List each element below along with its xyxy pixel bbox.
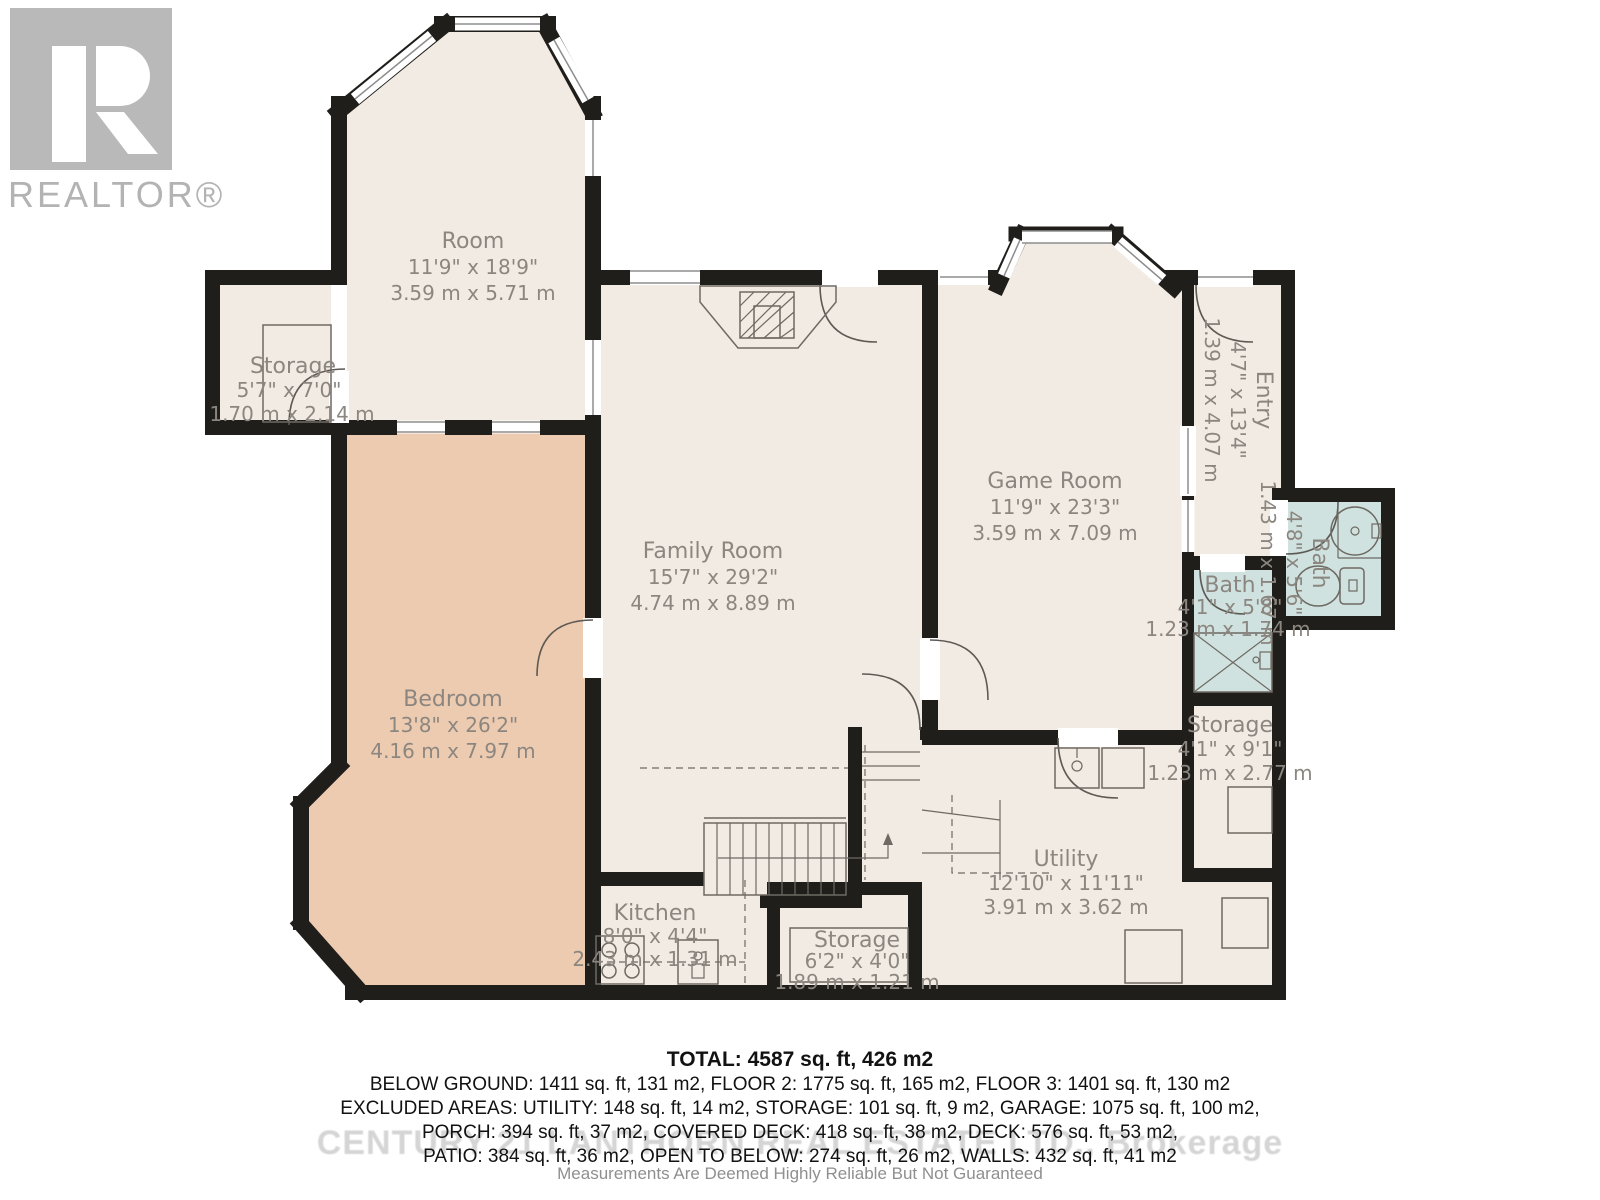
game-room-label: Game Room 11'9" x 23'3" 3.59 m x 7.09 m — [972, 469, 1137, 545]
svg-text:1.23 m x 2.77 m: 1.23 m x 2.77 m — [1147, 761, 1312, 785]
svg-text:3.59 m x 7.09 m: 3.59 m x 7.09 m — [972, 521, 1137, 545]
room-fills — [220, 28, 1381, 985]
svg-text:Storage: Storage — [1187, 713, 1273, 738]
svg-text:4'8" x 5'6": 4'8" x 5'6" — [1282, 511, 1306, 616]
family-window — [630, 271, 700, 283]
measurement-disclaimer: Measurements Are Deemed Highly Reliable … — [0, 1164, 1600, 1184]
svg-text:Utility: Utility — [1034, 847, 1099, 872]
excluded-areas-line-2: PORCH: 394 sq. ft, 37 m2, COVERED DECK: … — [0, 1122, 1600, 1144]
svg-text:13'8" x 26'2": 13'8" x 26'2" — [388, 713, 518, 737]
svg-text:Bath: Bath — [1307, 537, 1332, 588]
svg-text:Kitchen: Kitchen — [614, 901, 697, 926]
floor-plan-canvas: REALTOR® — [0, 0, 1600, 1200]
svg-text:2.43 m x 1.31 m: 2.43 m x 1.31 m — [572, 947, 737, 971]
svg-text:Bedroom: Bedroom — [403, 687, 503, 712]
room-name: Room — [442, 229, 505, 254]
svg-text:3.91 m x 3.62 m: 3.91 m x 3.62 m — [983, 895, 1148, 919]
svg-text:8'0" x 4'4": 8'0" x 4'4" — [603, 924, 708, 948]
svg-text:15'7" x 29'2": 15'7" x 29'2" — [648, 565, 778, 589]
svg-text:1.70 m x 2.14 m: 1.70 m x 2.14 m — [209, 402, 374, 426]
game-bay-window-top — [1022, 231, 1112, 243]
realtor-logo-r-stem — [52, 46, 86, 162]
family-room-label: Family Room 15'7" x 29'2" 4.74 m x 8.89 … — [630, 539, 795, 615]
svg-text:Game Room: Game Room — [987, 469, 1122, 494]
excluded-areas-line-1: EXCLUDED AREAS: UTILITY: 148 sq. ft, 14 … — [0, 1098, 1600, 1120]
room-metric: 3.59 m x 5.71 m — [390, 281, 555, 305]
svg-text:1.89 m x 1.21 m: 1.89 m x 1.21 m — [774, 970, 939, 994]
svg-text:4'1" x 5'8": 4'1" x 5'8" — [1178, 595, 1283, 619]
realtor-logo — [10, 8, 172, 170]
realtor-wordmark: REALTOR® — [8, 174, 225, 215]
svg-text:Entry: Entry — [1251, 371, 1276, 430]
svg-text:1.39 m x 4.07 m: 1.39 m x 4.07 m — [1200, 317, 1224, 482]
room-opening-1 — [397, 422, 445, 432]
svg-text:11'9" x 23'3": 11'9" x 23'3" — [990, 495, 1120, 519]
svg-text:4.16 m x 7.97 m: 4.16 m x 7.97 m — [370, 739, 535, 763]
svg-text:Family Room: Family Room — [643, 539, 783, 564]
room-opening-2 — [492, 422, 540, 432]
svg-text:4'7" x 13'4": 4'7" x 13'4" — [1226, 341, 1250, 459]
svg-text:4'1" x 9'1": 4'1" x 9'1" — [1178, 737, 1283, 761]
svg-text:4.74 m x 8.89 m: 4.74 m x 8.89 m — [630, 591, 795, 615]
total-area-line: TOTAL: 4587 sq. ft, 426 m2 — [0, 1048, 1600, 1072]
svg-text:5'7" x 7'0": 5'7" x 7'0" — [237, 378, 342, 402]
room-imperial: 11'9" x 18'9" — [408, 255, 538, 279]
floors-area-line: BELOW GROUND: 1411 sq. ft, 131 m2, FLOOR… — [0, 1074, 1600, 1096]
svg-text:Storage: Storage — [250, 354, 336, 379]
svg-text:1.23 m x 1.74 m: 1.23 m x 1.74 m — [1145, 617, 1310, 641]
floor-plan-page: REALTOR® — [0, 0, 1600, 1200]
svg-text:12'10" x 11'11": 12'10" x 11'11" — [988, 871, 1144, 895]
